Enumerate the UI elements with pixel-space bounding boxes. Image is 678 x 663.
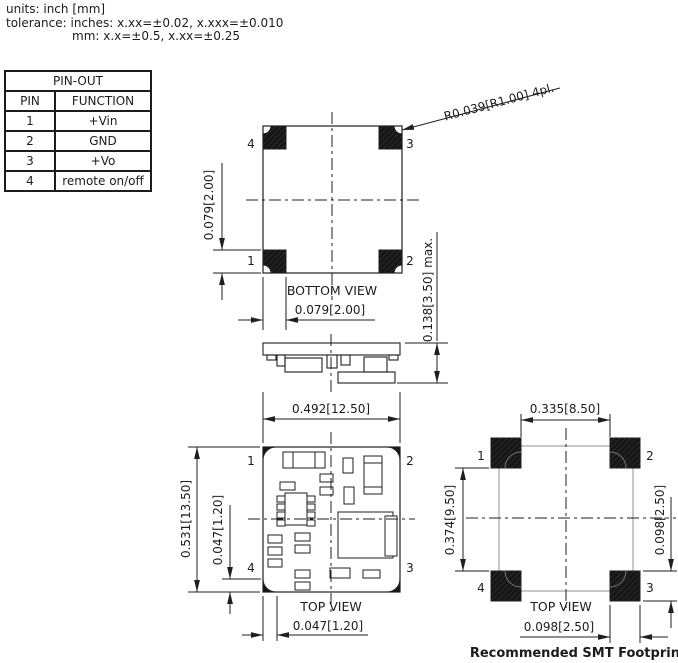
ic-pin (307, 504, 315, 510)
component-chip (268, 559, 282, 567)
component-chip (268, 535, 282, 543)
smt-footprint-texts: 1 2 4 3 0.335[8.50] 0.374[9.50] 0.098[2.… (443, 402, 678, 661)
side-view-component (285, 358, 322, 372)
pad-number-label: 4 (247, 561, 255, 575)
radius-callout-text: R0.039[R1.00] 4pl. (442, 81, 555, 124)
dimension-text: 0.098[2.50] (653, 485, 667, 555)
top-view (248, 432, 415, 612)
pad-number-label: 1 (247, 254, 255, 268)
component-capacitor (364, 456, 382, 494)
dimension-text: 0.335[8.50] (530, 402, 600, 416)
side-view-component (338, 372, 395, 383)
dimension-text: 0.492[12.50] (292, 402, 370, 416)
ic-pin (277, 504, 285, 510)
view-label: BOTTOM VIEW (287, 283, 377, 298)
bottom-view-pad-4 (263, 126, 286, 149)
ic-pin (307, 520, 315, 526)
component-chip (280, 482, 295, 490)
dimension-text: 0.079[2.00] (202, 170, 216, 240)
bottom-view (246, 112, 420, 300)
dimension-text: 0.079[2.00] (295, 303, 365, 317)
dimension-text: 0.047[1.20] (211, 495, 225, 565)
bottom-view-pad-1 (263, 250, 286, 273)
bottom-view-texts: 4 3 1 2 0.079[2.00] 0.079[2.00] 0.138[3.… (202, 81, 556, 342)
component-chip (268, 547, 282, 555)
side-view-pad (267, 355, 276, 360)
top-view-corner-pad-4 (263, 579, 276, 592)
ic-pin (307, 512, 315, 518)
pad-number-label: 4 (247, 137, 255, 151)
view-label: TOP VIEW (529, 599, 591, 614)
component-chip (363, 570, 380, 578)
pad-number-label: 2 (646, 449, 654, 463)
dimension-text: 0.374[9.50] (443, 485, 457, 555)
top-view-corner-pad-2 (387, 447, 400, 460)
mechanical-drawing-canvas: 4 3 1 2 0.079[2.00] 0.079[2.00] 0.138[3.… (0, 0, 678, 663)
bottom-view-pad-2 (379, 250, 402, 273)
side-view (263, 334, 400, 396)
dimension-text: 0.138[3.50] max. (421, 238, 435, 342)
component-chip (295, 533, 310, 541)
pad-number-label: 3 (646, 581, 654, 595)
datasheet-mechanical-drawing: units: inch [mm] tolerance: inches: x.xx… (0, 0, 678, 663)
component-transformer-tab (385, 516, 397, 556)
dimension-text: 0.098[2.50] (524, 620, 594, 634)
component-chip (295, 570, 310, 578)
pad-number-label: 1 (247, 454, 255, 468)
pad-number-label: 3 (406, 137, 414, 151)
top-view-texts: 1 2 4 3 0.492[12.50] 0.531[13.50] 0.047[… (179, 402, 414, 633)
side-view-component (364, 357, 387, 372)
top-view-corner-pad-1 (263, 447, 276, 460)
top-view-components (268, 452, 397, 590)
side-view-component (341, 355, 350, 365)
component-chip (344, 487, 354, 504)
side-view-pad (389, 355, 398, 360)
side-view-component (277, 355, 285, 366)
component-chip (330, 568, 350, 578)
pad-number-label: 2 (406, 254, 414, 268)
side-view-component (327, 355, 337, 368)
pad-number-label: 3 (406, 561, 414, 575)
component-ic-body (285, 493, 307, 525)
ic-pin (277, 520, 285, 526)
ic-pin (277, 496, 285, 502)
component-chip (295, 582, 310, 590)
dimension-text: 0.047[1.20] (293, 619, 363, 633)
pad-number-label: 4 (477, 581, 485, 595)
smt-footprint (466, 428, 676, 612)
pad-number-label: 2 (406, 454, 414, 468)
dimension-text: 0.531[13.50] (179, 480, 193, 558)
component-inductor (283, 452, 325, 468)
bottom-view-pad-3 (379, 126, 402, 149)
component-chip (295, 545, 310, 553)
ic-pin (307, 496, 315, 502)
top-view-corner-pad-3 (387, 579, 400, 592)
footprint-caption: Recommended SMT Footprint (470, 646, 678, 661)
component-chip (343, 458, 353, 473)
pad-number-label: 1 (477, 449, 485, 463)
view-label: TOP VIEW (299, 599, 361, 614)
ic-pin (277, 512, 285, 518)
